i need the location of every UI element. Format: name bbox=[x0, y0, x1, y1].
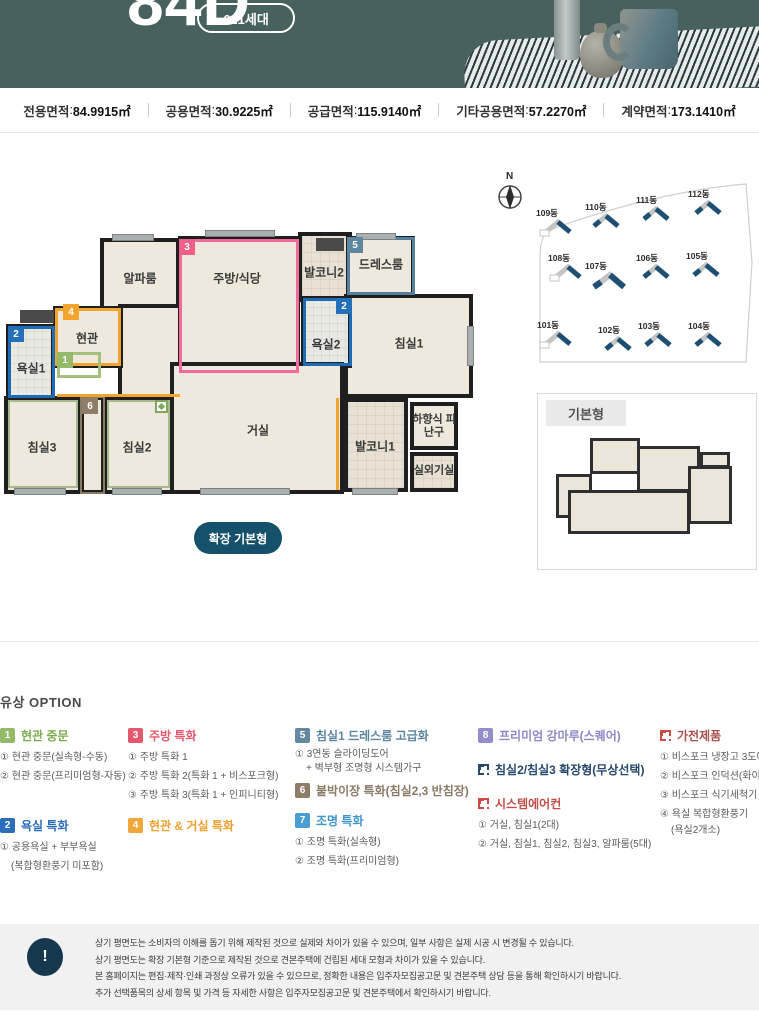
expanded-base-type-button[interactable]: 확장 기본형 bbox=[194, 522, 282, 554]
option-badge-1: 1 bbox=[0, 728, 15, 743]
option-group-builtin-closet: 6붙박이장 특화(침실2,3 반침장) bbox=[295, 782, 469, 799]
building-106 bbox=[644, 267, 668, 277]
base-type-label: 기본형 bbox=[546, 400, 626, 426]
building-103 bbox=[646, 335, 670, 345]
building-101 bbox=[540, 334, 570, 348]
household-count-badge: 621세대 bbox=[197, 3, 295, 33]
room-label-living: 거실 bbox=[247, 422, 269, 439]
building-label: 104동 bbox=[688, 321, 710, 331]
option-badge-6: 6 bbox=[295, 783, 310, 798]
area-cell-exclusive: 전용면적 : 84.9915㎡ bbox=[23, 101, 130, 120]
option-badge-4: 4 bbox=[128, 818, 143, 833]
divider bbox=[603, 103, 604, 117]
building-label: 111동 bbox=[636, 195, 657, 205]
floor-plan-page: 84D 621세대 전용면적 : 84.9915㎡ 공용면적 : 30.9225… bbox=[0, 0, 759, 1024]
option-group-kitchen: 3주방 특화 ① 주방 특화 1② 주방 특화 2(특화 1 + 비스포크형)③… bbox=[128, 727, 278, 805]
option-group-bathroom: 2욕실 특화 ① 공용욕실 + 부부욕실(복합형환풍기 미포함) bbox=[0, 817, 103, 876]
option-group-appliances: 가전제품 ① 비스포크 냉장고 3도어② 비스포크 인덕션(화이트)③ 비스포크… bbox=[660, 727, 759, 837]
plan-badge-5: 5 bbox=[347, 237, 363, 253]
overlay-kitchen-option bbox=[179, 239, 299, 373]
shaft bbox=[20, 310, 54, 323]
building-label: 110동 bbox=[585, 202, 607, 212]
building-102 bbox=[606, 339, 630, 349]
overlay-living-option-line bbox=[336, 398, 339, 490]
plan-badge-2: 2 bbox=[8, 326, 24, 342]
overlay-living-option-line bbox=[57, 394, 180, 397]
building-105 bbox=[694, 265, 718, 275]
room-label-bedroom2: 침실2 bbox=[123, 439, 152, 456]
extension-marker-icon bbox=[155, 400, 168, 413]
corner-option-icon bbox=[478, 798, 489, 809]
room-label-balcony1: 발코니1 bbox=[355, 438, 395, 455]
room-label-kitchen: 주방/식당 bbox=[213, 270, 261, 287]
building-label: 103동 bbox=[638, 321, 660, 331]
room-label-bedroom1: 침실1 bbox=[395, 335, 424, 352]
vase-decor bbox=[554, 0, 580, 60]
area-cell-supply: 공급면적 : 115.9140㎡ bbox=[308, 101, 421, 120]
paid-option-title: 유상 OPTION bbox=[0, 692, 82, 711]
building-110 bbox=[594, 216, 618, 226]
site-map: N 109동 110동 111동 112동 108동 107동 106동 105… bbox=[492, 166, 759, 370]
plan-badge-4: 4 bbox=[63, 304, 79, 320]
area-cell-contract: 계약면적 : 173.1410㎡ bbox=[621, 101, 735, 120]
window bbox=[200, 488, 290, 495]
building-112 bbox=[696, 203, 720, 213]
building-label: 101동 bbox=[537, 320, 559, 330]
section-divider bbox=[0, 641, 759, 642]
room-label-bath2: 욕실2 bbox=[312, 336, 341, 353]
base-type-box: 기본형 bbox=[537, 393, 757, 570]
building-108 bbox=[550, 267, 580, 281]
divider bbox=[290, 103, 291, 117]
room-label-escape-hatch: 하향식 피난구 bbox=[410, 413, 458, 438]
area-cell-other-common: 기타공용면적 : 57.2270㎡ bbox=[456, 101, 586, 120]
window bbox=[112, 488, 162, 495]
option-group-flooring: 8프리미엄 강마루(스퀘어) bbox=[478, 727, 621, 744]
mini-plan-part bbox=[700, 452, 730, 468]
compass-n-label: N bbox=[506, 171, 513, 182]
area-info-bar: 전용면적 : 84.9915㎡ 공용면적 : 30.9225㎡ 공급면적 : 1… bbox=[0, 88, 759, 133]
room-label-outdoor-unit: 실외기실 bbox=[410, 465, 458, 478]
option-group-lighting: 7조명 특화 ① 조명 특화(실속형)② 조명 특화(프리미엄형) bbox=[295, 812, 399, 871]
plan-badge-6: 6 bbox=[82, 398, 98, 414]
option-badge-2: 2 bbox=[0, 818, 15, 833]
room-label-bath1: 욕실1 bbox=[17, 360, 46, 377]
option-group-entry-living: 4현관 & 거실 특화 bbox=[128, 817, 234, 834]
building-107 bbox=[594, 275, 624, 287]
option-badge-8: 8 bbox=[478, 728, 493, 743]
room-label-bedroom3: 침실3 bbox=[28, 439, 57, 456]
mini-plan-part bbox=[688, 466, 732, 524]
mini-plan-part bbox=[568, 490, 690, 534]
option-badge-5: 5 bbox=[295, 728, 310, 743]
shaft bbox=[316, 238, 344, 251]
option-badge-7: 7 bbox=[295, 813, 310, 828]
building-label: 102동 bbox=[598, 325, 620, 335]
building-104 bbox=[696, 335, 720, 345]
building-label: 112동 bbox=[688, 189, 710, 199]
notice-box: ! 상기 평면도는 소비자의 이해를 돕기 위해 제작된 것으로 실제와 차이가… bbox=[0, 924, 759, 1010]
window bbox=[467, 326, 474, 366]
building-label: 105동 bbox=[686, 251, 708, 261]
corner-option-icon bbox=[660, 730, 671, 741]
exclamation-icon: ! bbox=[27, 938, 63, 976]
plan-badge-3: 3 bbox=[179, 239, 195, 255]
building-label: 108동 bbox=[548, 253, 570, 263]
building-111 bbox=[644, 209, 668, 219]
room-label-alpha: 알파룸 bbox=[123, 270, 156, 287]
room-label-balcony2: 발코니2 bbox=[304, 264, 344, 281]
room-label-entry: 현관 bbox=[76, 330, 98, 347]
divider bbox=[438, 103, 439, 117]
window bbox=[112, 234, 154, 241]
window bbox=[205, 230, 275, 237]
window bbox=[14, 488, 66, 495]
mini-plan-part bbox=[590, 438, 640, 474]
room-label-dressroom: 드레스룸 bbox=[359, 256, 403, 273]
option-badge-3: 3 bbox=[128, 728, 143, 743]
plan-badge-1: 1 bbox=[57, 352, 73, 368]
notice-text: 상기 평면도는 소비자의 이해를 돕기 위해 제작된 것으로 실제와 차이가 있… bbox=[95, 935, 621, 1001]
header-banner: 84D 621세대 bbox=[0, 0, 759, 88]
building-label: 107동 bbox=[585, 261, 607, 271]
window bbox=[352, 488, 398, 495]
area-cell-common: 공용면적 : 30.9225㎡ bbox=[166, 101, 273, 120]
building-label: 109동 bbox=[536, 208, 558, 218]
main-floor-plan: 3 5 2 2 4 1 6 알파룸 주방/식당 발코니2 드레스룸 침실1 욕실… bbox=[0, 226, 478, 502]
header-photo bbox=[454, 0, 759, 88]
plan-badge-2: 2 bbox=[336, 298, 352, 314]
option-group-entry-door: 1현관 중문 ① 현관 중문(실속형-수동)② 현관 중문(프리미엄형-자동) bbox=[0, 727, 126, 786]
building-label: 106동 bbox=[636, 253, 658, 263]
option-group-dressroom: 5침실1 드레스룸 고급화 ① 3연동 슬라이딩도어+ 벽부형 조명형 시스템가… bbox=[295, 727, 429, 776]
option-group-bed-extension: 침실2/침실3 확장형(무상선택) bbox=[478, 761, 644, 778]
divider bbox=[148, 103, 149, 117]
mug-decor bbox=[620, 9, 678, 69]
corner-option-icon bbox=[478, 764, 489, 775]
option-group-aircon: 시스템에어컨 ① 거실, 침실1(2대)② 거실, 침실1, 침실2, 침실3,… bbox=[478, 795, 651, 854]
